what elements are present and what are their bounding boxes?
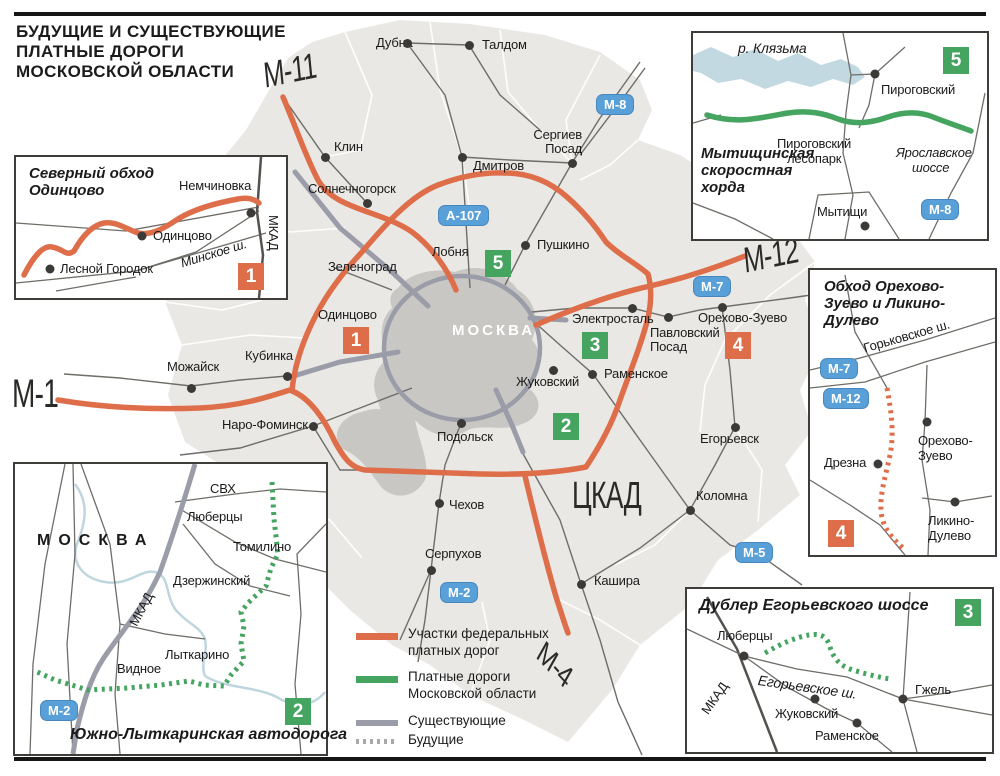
city-label-zelenograd: Зеленоград	[328, 260, 397, 274]
inset1-label-mkad: МКАД	[266, 215, 280, 251]
inset-mytishchi-title-2: скоростная	[701, 162, 792, 179]
legend-swatch-federal	[356, 633, 398, 640]
city-label-orekhovo-zuevo: Орехово-Зуево	[698, 311, 787, 325]
road-pill-m5: М-5	[735, 542, 773, 563]
city-dot-mozhaysk	[187, 384, 196, 393]
city-label-kubinka: Кубинка	[245, 349, 293, 363]
project-badge-5: 5	[485, 250, 511, 277]
inset-lytkarino-badge: 2	[285, 698, 311, 725]
road-pill-a107: А-107	[438, 205, 489, 226]
inset3-label-orekhovo-2: Зуево	[918, 449, 952, 463]
inset-mytishchi-badge: 5	[943, 47, 969, 74]
inset2-label-mytishchi: Мытищи	[817, 205, 867, 219]
inset1-label-lesnoy-gorodok: Лесной Городок	[60, 262, 153, 276]
title-line-3: МОСКОВСКОЙ ОБЛАСТИ	[16, 62, 286, 82]
inset5-pill-m2: М-2	[40, 700, 78, 721]
inset-odintsovo-badge: 1	[238, 263, 264, 290]
highway-label-ckad: ЦКАД	[572, 478, 641, 514]
project-badge-1: 1	[343, 327, 369, 354]
bottom-rule	[14, 757, 986, 761]
city-label-dmitrov: Дмитров	[473, 159, 524, 173]
inset2-label-pirogovskiy: Пироговский	[881, 83, 955, 97]
city-dot-taldom	[465, 41, 474, 50]
inset4-toll-road-future	[765, 635, 890, 680]
city-dot-orekhovo-zuevo	[718, 303, 727, 312]
inset3-label-likino-2: Дулево	[928, 529, 971, 543]
inset4-label-lyubertsy: Люберцы	[717, 629, 772, 643]
inset-odintsovo-title-1: Северный обход	[29, 165, 154, 182]
inset-egoryevsk-title: Дублер Егорьевского шоссе	[699, 597, 928, 614]
city-label-naro-fominsk: Наро-Фоминск	[222, 418, 308, 432]
inset-orekhovo-title-1: Обход Орехово-	[824, 278, 944, 295]
city-label-elektrostal: Электросталь	[572, 312, 653, 326]
inset3-label-likino-1: Ликино-	[928, 514, 974, 528]
city-label-chekhov: Чехов	[449, 498, 484, 512]
inset2-toll-road	[707, 112, 971, 131]
inset5-label-moscow: МОСКВА	[37, 534, 154, 548]
inset3-pill-m12: М-12	[823, 388, 869, 409]
legend-label-future: Будущие	[408, 731, 464, 748]
city-label-sergiev-posad: Сергиев Посад	[516, 128, 582, 156]
inset5-label-dzerzhinsky: Дзержинский	[173, 574, 250, 588]
inset3-pill-m7: М-7	[820, 358, 858, 379]
infographic-toll-roads-moscow-region: БУДУЩИЕ И СУЩЕСТВУЮЩИЕ ПЛАТНЫЕ ДОРОГИ МО…	[0, 0, 1000, 776]
inset4-label-gzhel: Гжель	[915, 683, 951, 697]
city-dot-naro-fominsk	[309, 422, 318, 431]
city-dot-pushkino	[521, 241, 530, 250]
city-dot-klin	[321, 153, 330, 162]
highway-label-m1: М-1	[12, 376, 58, 412]
inset-orekhovo-title-2: Зуево и Ликино-	[824, 295, 945, 312]
inset5-label-vidnoe: Видное	[117, 662, 161, 676]
legend-label-federal-2: платных дорог	[408, 642, 500, 659]
inset2-label-klyazma: р. Клязьма	[738, 41, 806, 55]
city-label-ramenskoye: Раменское	[604, 367, 668, 381]
legend-swatch-existing	[356, 720, 398, 726]
moscow-city-label: МОСКВА	[452, 322, 535, 339]
inset5-label-svh: СВХ	[210, 482, 236, 496]
city-dot-zhukovsky	[549, 366, 558, 375]
city-label-lobnya: Лобня	[432, 245, 468, 259]
project-badge-2: 2	[553, 413, 579, 440]
title-line-1: БУДУЩИЕ И СУЩЕСТВУЮЩИЕ	[16, 22, 286, 42]
inset3-label-orekhovo-1: Орехово-	[918, 434, 973, 448]
city-dot-solnechnogorsk	[363, 199, 372, 208]
inset5-label-lyubertsy: Люберцы	[187, 510, 242, 524]
city-label-odintsovo: Одинцово	[318, 308, 377, 322]
inset-lytkarino-title: Южно-Лыткаринская автодорога	[70, 726, 347, 743]
city-label-klin: Клин	[334, 140, 363, 154]
city-label-zhukovsky: Жуковский	[516, 375, 579, 389]
road-pill-m2: М-2	[440, 582, 478, 603]
inset5-label-lytkarino: Лыткарино	[165, 648, 229, 662]
inset1-label-odintsovo: Одинцово	[153, 229, 212, 243]
city-dot-sergiev-posad	[568, 159, 577, 168]
city-dot-kashira	[577, 580, 586, 589]
city-dot-dmitrov	[458, 153, 467, 162]
top-rule	[14, 12, 986, 16]
project-badge-3: 3	[582, 332, 608, 359]
city-label-serpukhov: Серпухов	[425, 547, 481, 561]
inset-egoryevsk: Дублер Егорьевского шоссе 3 Люберцы МКАД…	[685, 587, 994, 754]
inset-lytkarino: МОСКВА СВХ Люберцы Томилино Дзержинский …	[13, 462, 328, 756]
legend-label-existing: Существующие	[408, 712, 506, 729]
inset-orekhovo-title-3: Дулево	[824, 312, 879, 329]
inset-mytishchi: р. Клязьма 5 Пироговский Пироговский лес…	[691, 31, 989, 241]
legend-label-regional-1: Платные дороги	[408, 668, 510, 685]
inset3-label-drezna: Дрезна	[824, 456, 866, 470]
city-dot-elektrostal	[628, 304, 637, 313]
road-pill-m7: М-7	[693, 276, 731, 297]
city-dot-chekhov	[435, 499, 444, 508]
inset-orekhovo-badge: 4	[828, 520, 854, 547]
road-pill-m8: М-8	[596, 94, 634, 115]
inset5-label-tomilino: Томилино	[233, 540, 291, 554]
city-label-mozhaysk: Можайск	[167, 360, 219, 374]
city-dot-ramenskoye	[588, 370, 597, 379]
inset2-label-yaroslavskoe-2: шоссе	[912, 161, 949, 175]
city-label-egoryevsk: Егорьевск	[700, 432, 759, 446]
legend-label-federal-1: Участки федеральных	[408, 625, 549, 642]
legend-swatch-future	[356, 739, 398, 744]
city-label-kashira: Кашира	[594, 574, 640, 588]
city-dot-serpukhov	[427, 566, 436, 575]
city-dot-egoryevsk	[731, 423, 740, 432]
city-label-solnechnogorsk: Солнечногорск	[308, 182, 396, 196]
inset3-toll-road-future	[881, 388, 905, 550]
city-label-pushkino: Пушкино	[537, 238, 589, 252]
city-label-pavlovsky-posad: Павловский Посад	[650, 326, 732, 354]
inset4-label-ramenskoye: Раменское	[815, 729, 879, 743]
inset-orekhovo: Обход Орехово- Зуево и Ликино- Дулево Го…	[808, 268, 997, 557]
legend-label-regional-2: Московской области	[408, 685, 536, 702]
inset4-label-zhukovsky: Жуковский	[775, 707, 838, 721]
city-label-kolomna: Коломна	[696, 489, 747, 503]
city-label-podolsk: Подольск	[437, 430, 493, 444]
legend-swatch-regional	[356, 676, 398, 683]
inset-odintsovo-title-2: Одинцово	[29, 182, 104, 199]
inset-odintsovo: Северный обход Одинцово Немчиновка Одинц…	[14, 155, 288, 300]
inset1-label-nemchinovka: Немчиновка	[179, 179, 251, 193]
inset2-label-yaroslavskoe-1: Ярославское	[896, 146, 972, 160]
city-dot-kolomna	[686, 506, 695, 515]
inset-mytishchi-title-1: Мытищинская	[701, 145, 814, 162]
city-dot-dubna	[403, 39, 412, 48]
city-label-taldom: Талдом	[482, 38, 527, 52]
inset2-pill-m8: М-8	[921, 199, 959, 220]
city-dot-kubinka	[283, 372, 292, 381]
title-line-2: ПЛАТНЫЕ ДОРОГИ	[16, 42, 286, 62]
city-dot-pavlovsky-posad	[664, 313, 673, 322]
inset-egoryevsk-badge: 3	[955, 599, 981, 626]
inset-mytishchi-title-3: хорда	[701, 179, 745, 196]
project-badge-4: 4	[725, 332, 751, 359]
highway-label-m11: М-11	[262, 48, 318, 94]
page-title: БУДУЩИЕ И СУЩЕСТВУЮЩИЕ ПЛАТНЫЕ ДОРОГИ МО…	[16, 22, 286, 82]
city-dot-podolsk	[457, 419, 466, 428]
